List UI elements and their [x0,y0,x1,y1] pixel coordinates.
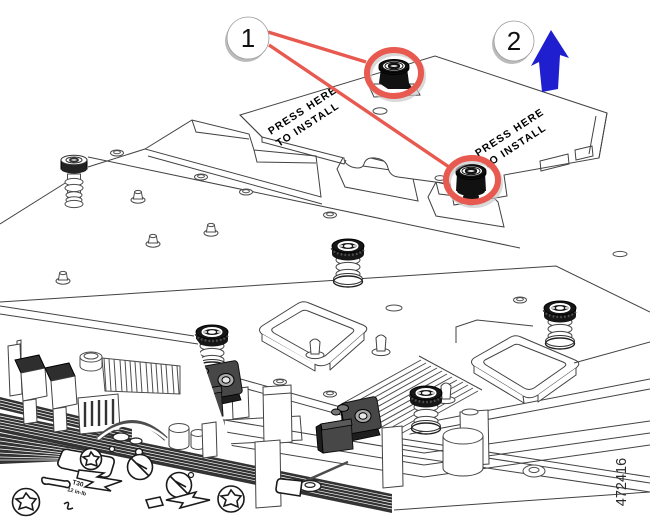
svg-text:472416: 472416 [614,458,630,506]
svg-text:1: 1 [241,23,255,53]
svg-text:2: 2 [507,26,521,56]
